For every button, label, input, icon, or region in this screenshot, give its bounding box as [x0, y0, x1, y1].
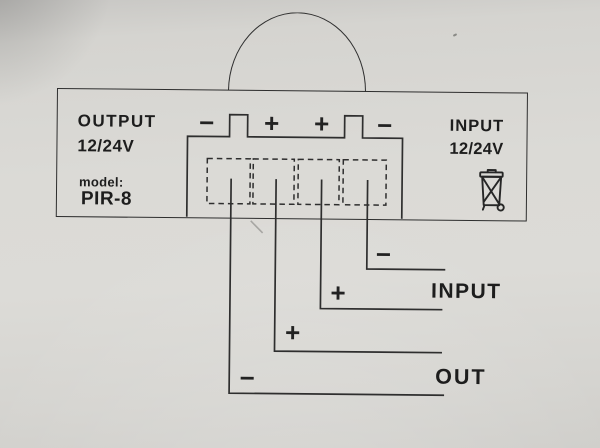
connector-and-wires	[0, 0, 600, 448]
terminal-cell-4	[343, 160, 386, 205]
wire-sign-out-pos: +	[285, 319, 300, 345]
wiring-diagram: OUTPUT 12/24V model: PIR-8 INPUT 12/24V …	[0, 0, 600, 448]
input-wires-label: INPUT	[431, 281, 502, 303]
manual-photo: OUTPUT 12/24V model: PIR-8 INPUT 12/24V …	[0, 0, 600, 448]
terminal-cell-1	[207, 158, 250, 203]
scratch-mark	[251, 221, 263, 233]
out-wires-label: OUT	[435, 367, 487, 389]
terminal-cell-3	[298, 159, 339, 204]
wire-sign-out-neg: −	[240, 365, 255, 391]
wire-sign-in-neg: −	[376, 241, 391, 267]
terminal-cell-2	[253, 159, 294, 204]
wire-sign-in-pos: +	[330, 280, 345, 306]
